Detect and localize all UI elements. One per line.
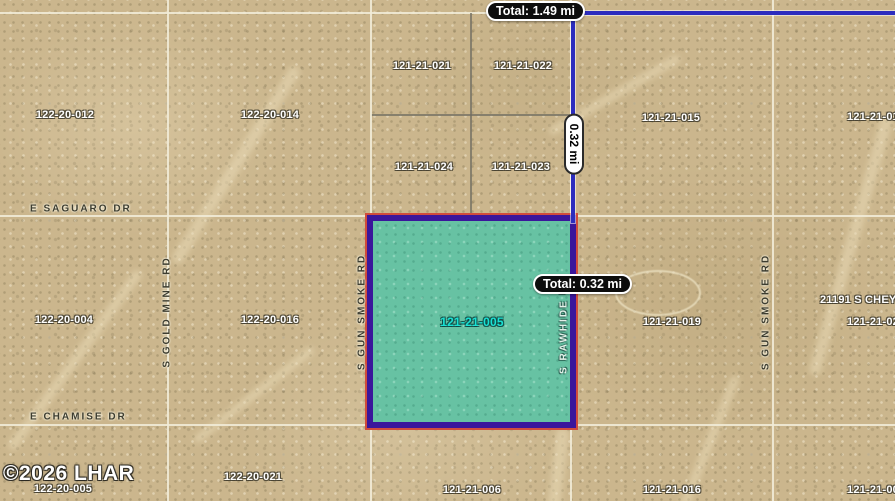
road-line-gold-mine xyxy=(167,0,169,501)
parcel-label: 122-20-014 xyxy=(241,109,299,121)
parcel-label: 121-21-006 xyxy=(443,484,501,496)
parcel-map-canvas[interactable]: E SAGUARO DR E CHAMISE DR S GOLD MINE RD… xyxy=(0,0,895,501)
grid-line-vertical xyxy=(470,13,472,217)
address-label: 21191 S CHEYENNE xyxy=(820,294,895,306)
road-label-chamise: E CHAMISE DR xyxy=(30,412,127,423)
parcel-label: 121-21-015 xyxy=(642,112,700,124)
road-label-saguaro: E SAGUARO DR xyxy=(30,204,132,215)
parcel-label: 122-20-021 xyxy=(224,471,282,483)
parcel-label: 121-21-014 xyxy=(847,111,895,123)
parcel-label: 121-21-022 xyxy=(494,60,552,72)
parcel-label: 121-21-024 xyxy=(395,161,453,173)
desert-wash xyxy=(170,64,302,265)
copyright-watermark: ©2026 LHAR xyxy=(3,462,134,486)
desert-wash xyxy=(192,346,315,445)
road-label-gold-mine: S GOLD MINE RD xyxy=(162,256,173,367)
parcel-label: 121-21-016 xyxy=(643,484,701,496)
road-line-gun-smoke xyxy=(772,0,774,501)
road-label-gun-smoke-east: S GUN SMOKE RD xyxy=(761,254,772,370)
parcel-label: 121-21-023 xyxy=(492,161,550,173)
parcel-label: 121-21-019 xyxy=(643,316,701,328)
measure-total-route-badge: Total: 1.49 mi xyxy=(486,1,585,21)
desert-wash xyxy=(808,114,894,377)
parcel-label: 121-21-020 xyxy=(847,316,895,328)
parcel-label: 121-21-021 xyxy=(393,60,451,72)
measure-line-horizontal xyxy=(571,11,895,15)
measure-total-selection-badge: Total: 0.32 mi xyxy=(533,274,632,294)
parcel-label: 122-20-004 xyxy=(35,314,93,326)
measure-segment-badge: 0.32 mi xyxy=(564,114,584,175)
road-label-gun-smoke-west: S GUN SMOKE RD xyxy=(357,254,368,370)
parcel-label: 121-21-009 xyxy=(847,484,895,496)
desert-wash xyxy=(668,375,740,501)
parcel-label: 122-20-012 xyxy=(36,109,94,121)
selected-parcel-label: 121-21-005 xyxy=(440,315,503,329)
parcel-label: 122-20-016 xyxy=(241,314,299,326)
desert-wash xyxy=(547,428,570,501)
